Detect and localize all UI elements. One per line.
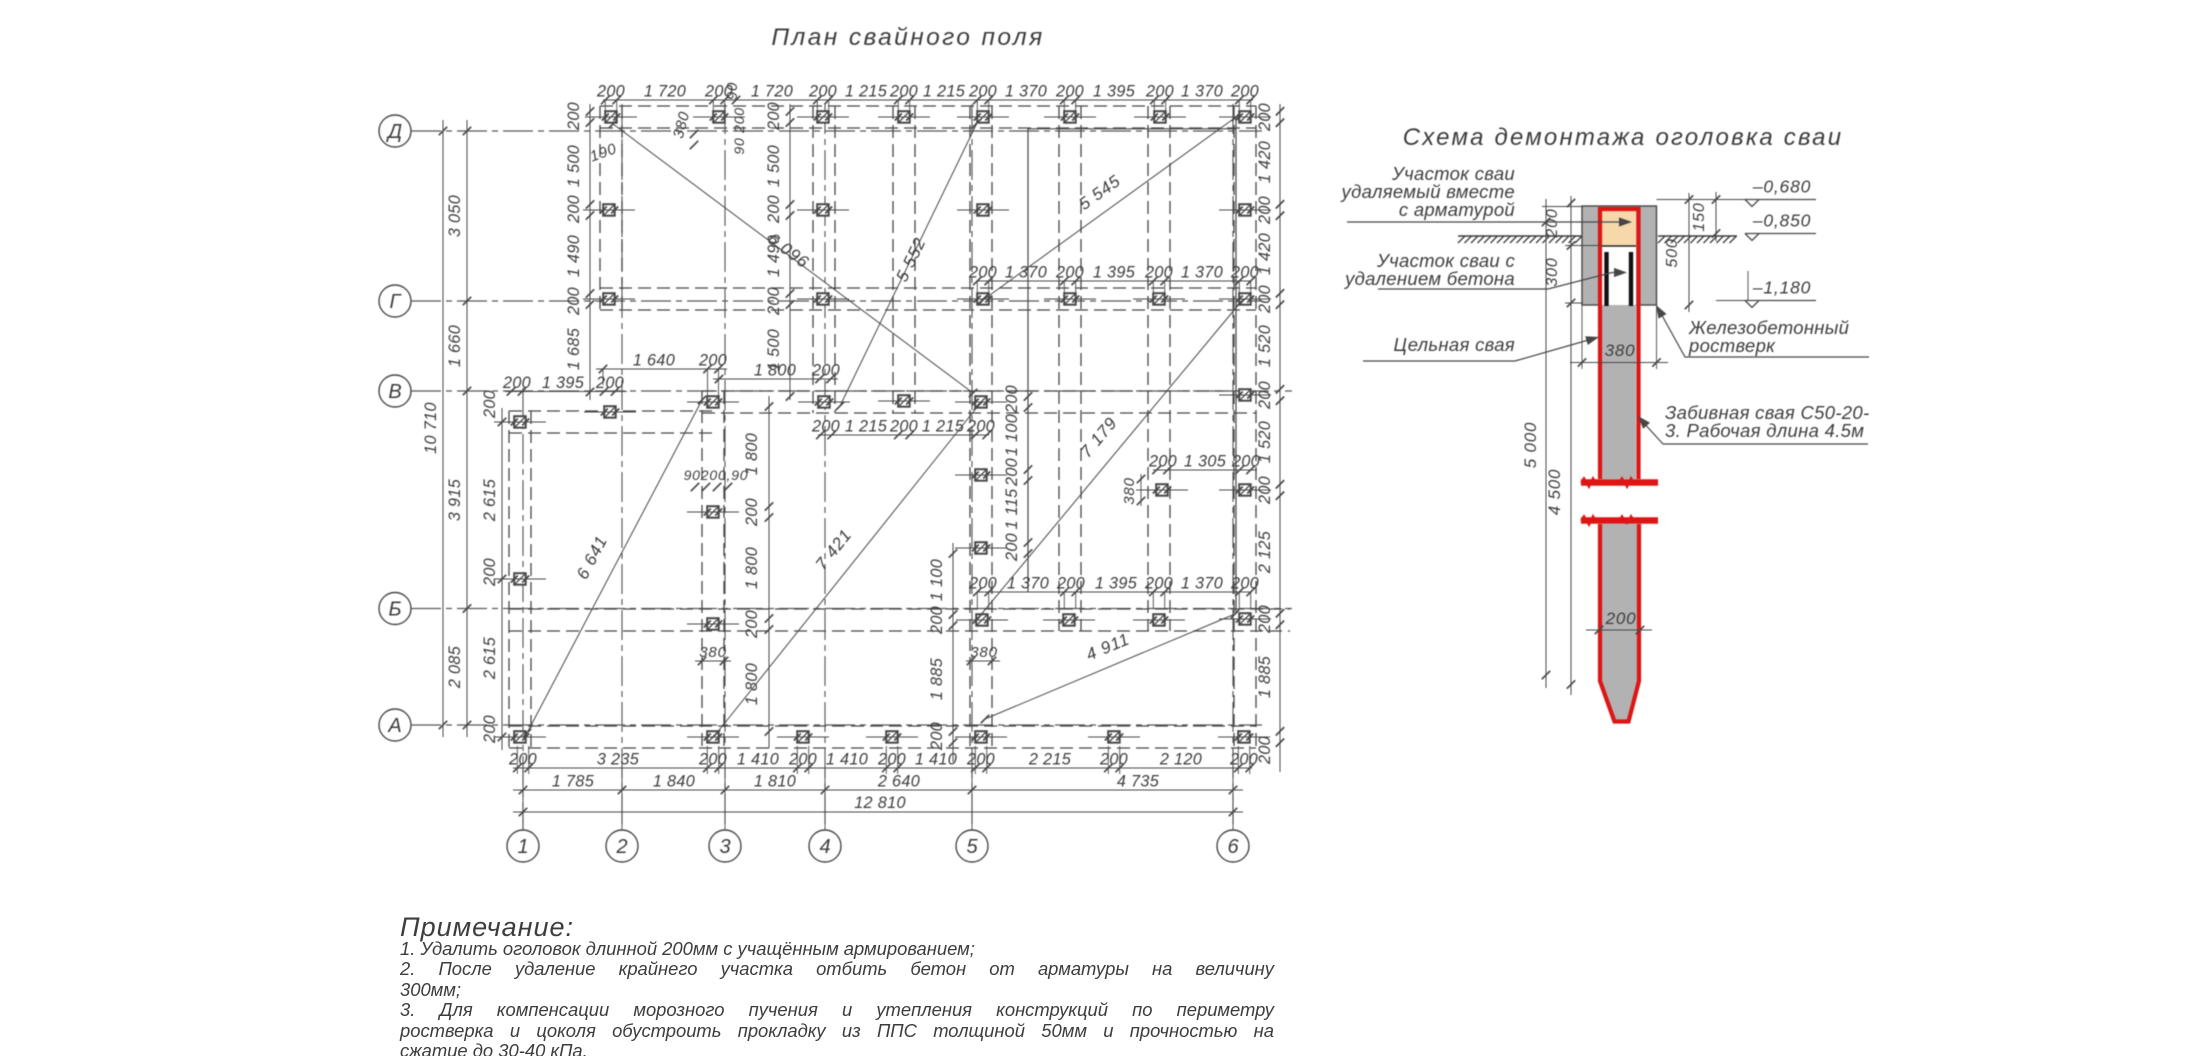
svg-text:150: 150 [1691, 202, 1708, 231]
svg-text:1 720: 1 720 [751, 83, 793, 101]
svg-text:200: 200 [889, 83, 918, 101]
svg-text:200: 200 [565, 195, 583, 224]
svg-text:4: 4 [819, 836, 830, 858]
svg-text:1 395: 1 395 [1095, 575, 1138, 593]
svg-text:1 520: 1 520 [1256, 325, 1274, 367]
svg-text:5 000: 5 000 [1521, 422, 1540, 469]
svg-text:90200,90: 90200,90 [684, 467, 749, 483]
svg-text:200: 200 [1256, 103, 1274, 132]
svg-text:200: 200 [1144, 264, 1173, 282]
svg-text:200: 200 [765, 287, 783, 316]
svg-text:1 800: 1 800 [743, 547, 761, 589]
svg-text:2: 2 [615, 836, 627, 858]
svg-text:200: 200 [595, 374, 624, 392]
svg-text:3: 3 [719, 836, 730, 858]
svg-text:200: 200 [1055, 264, 1084, 282]
svg-text:200: 200 [788, 751, 817, 769]
svg-text:1 410: 1 410 [737, 751, 779, 769]
svg-text:1 800: 1 800 [743, 663, 761, 705]
svg-text:1 215: 1 215 [922, 418, 965, 436]
svg-text:1 785: 1 785 [552, 773, 595, 791]
svg-text:6: 6 [1227, 836, 1239, 858]
svg-text:200: 200 [502, 374, 531, 392]
svg-text:1 420: 1 420 [1256, 141, 1274, 183]
svg-text:1 720: 1 720 [644, 83, 686, 101]
svg-text:1 500: 1 500 [765, 329, 783, 371]
svg-text:1 370: 1 370 [1007, 575, 1049, 593]
svg-text:–0,850: –0,850 [1752, 211, 1811, 231]
svg-text:200: 200 [1256, 285, 1274, 314]
svg-text:3 235: 3 235 [597, 751, 640, 769]
svg-text:План свайного поля: План свайного поля [771, 24, 1044, 51]
svg-text:200: 200 [1055, 83, 1084, 101]
svg-text:3 050: 3 050 [446, 195, 464, 237]
svg-text:1 305: 1 305 [1184, 453, 1227, 471]
svg-text:5: 5 [966, 836, 978, 858]
svg-text:1 395: 1 395 [542, 374, 585, 392]
svg-text:1 370: 1 370 [1181, 83, 1223, 101]
svg-text:1 215: 1 215 [923, 83, 966, 101]
svg-text:200: 200 [1003, 458, 1021, 487]
svg-text:380: 380 [1121, 477, 1138, 504]
svg-text:2 615: 2 615 [481, 636, 499, 680]
svg-text:–0,680: –0,680 [1752, 177, 1811, 197]
svg-text:Б: Б [388, 599, 401, 621]
svg-text:200: 200 [811, 362, 840, 380]
svg-text:1 100: 1 100 [928, 559, 946, 601]
svg-text:1 410: 1 410 [915, 751, 957, 769]
svg-text:4 500: 4 500 [1545, 469, 1564, 516]
svg-text:200: 200 [1256, 736, 1274, 765]
svg-text:Д: Д [386, 121, 402, 143]
svg-text:200: 200 [1003, 385, 1021, 414]
svg-text:В: В [388, 381, 401, 403]
svg-text:1 370: 1 370 [1005, 83, 1047, 101]
svg-text:Цельная свая: Цельная свая [1394, 334, 1515, 355]
svg-text:200: 200 [481, 390, 499, 419]
svg-text:1 885: 1 885 [928, 657, 946, 700]
svg-text:200: 200 [968, 575, 997, 593]
svg-text:1 420: 1 420 [1256, 233, 1274, 275]
svg-text:1 660: 1 660 [446, 325, 464, 367]
svg-text:200: 200 [1144, 575, 1173, 593]
svg-text:200: 200 [1230, 575, 1259, 593]
svg-text:2 120: 2 120 [1159, 751, 1202, 769]
svg-text:2 085: 2 085 [446, 645, 464, 689]
svg-text:200: 200 [928, 606, 946, 635]
svg-text:3 915: 3 915 [446, 478, 464, 521]
svg-text:1: 1 [517, 836, 528, 858]
svg-text:200: 200 [1256, 196, 1274, 225]
svg-text:200: 200 [1145, 83, 1174, 101]
svg-text:1 215: 1 215 [845, 418, 888, 436]
svg-text:200: 200 [596, 83, 625, 101]
svg-text:1 500: 1 500 [765, 145, 783, 187]
svg-text:4 735: 4 735 [1117, 773, 1160, 791]
svg-text:2 640: 2 640 [877, 773, 920, 791]
svg-text:200: 200 [928, 722, 946, 751]
svg-text:2 615: 2 615 [481, 478, 499, 522]
svg-text:2 215: 2 215 [1028, 751, 1072, 769]
svg-text:200: 200 [765, 195, 783, 224]
svg-text:1 500: 1 500 [565, 145, 583, 187]
svg-text:1 395: 1 395 [1093, 264, 1136, 282]
svg-text:200: 200 [889, 418, 918, 436]
svg-text:90: 90 [731, 137, 747, 154]
svg-text:200: 200 [966, 418, 995, 436]
svg-text:1 840: 1 840 [653, 773, 695, 791]
svg-text:200: 200 [811, 418, 840, 436]
svg-text:1 115: 1 115 [1003, 488, 1021, 530]
svg-text:200: 200 [743, 498, 761, 527]
svg-text:1 490: 1 490 [565, 235, 583, 277]
svg-text:с арматурой: с арматурой [1399, 199, 1515, 220]
svg-text:1 370: 1 370 [1005, 264, 1047, 282]
svg-text:200: 200 [966, 751, 995, 769]
svg-text:ростверк: ростверк [1688, 335, 1776, 356]
svg-text:200: 200 [565, 102, 583, 131]
svg-text:1 370: 1 370 [1181, 264, 1223, 282]
svg-text:200: 200 [1099, 751, 1128, 769]
svg-text:200: 200 [743, 610, 761, 639]
svg-text:1 370: 1 370 [1181, 575, 1223, 593]
svg-text:1 640: 1 640 [633, 352, 675, 370]
svg-text:200: 200 [698, 751, 727, 769]
svg-text:200: 200 [808, 83, 837, 101]
svg-text:200: 200 [731, 107, 747, 134]
svg-text:200: 200 [1230, 264, 1259, 282]
svg-text:удалением бетона: удалением бетона [1343, 268, 1515, 289]
svg-text:1 395: 1 395 [1093, 83, 1136, 101]
svg-text:200: 200 [1256, 381, 1274, 410]
svg-text:200: 200 [508, 751, 537, 769]
svg-text:1 810: 1 810 [754, 773, 796, 791]
svg-text:200: 200 [1544, 208, 1561, 238]
svg-text:–1,180: –1,180 [1752, 278, 1811, 298]
svg-text:200: 200 [877, 751, 906, 769]
svg-text:1 100: 1 100 [1003, 414, 1021, 456]
svg-text:А: А [387, 715, 401, 737]
svg-text:1 885: 1 885 [1256, 655, 1274, 698]
svg-text:200: 200 [1256, 605, 1274, 634]
svg-text:380: 380 [1605, 341, 1636, 360]
svg-text:200: 200 [1003, 533, 1021, 562]
svg-text:200: 200 [968, 264, 997, 282]
svg-text:1 520: 1 520 [1256, 421, 1274, 463]
svg-text:300: 300 [1544, 257, 1561, 286]
svg-text:3. Рабочая длина 4.5м: 3. Рабочая длина 4.5м [1665, 420, 1864, 441]
svg-text:500: 500 [1664, 238, 1681, 267]
svg-text:200: 200 [1230, 83, 1259, 101]
svg-text:1 215: 1 215 [845, 83, 888, 101]
svg-text:200: 200 [1148, 453, 1177, 471]
svg-text:200: 200 [968, 83, 997, 101]
svg-text:200: 200 [481, 558, 499, 587]
svg-text:200: 200 [1605, 609, 1637, 628]
svg-text:200: 200 [1056, 575, 1085, 593]
svg-text:200: 200 [481, 715, 499, 744]
svg-text:1 800: 1 800 [743, 433, 761, 475]
svg-text:2 125: 2 125 [1256, 530, 1274, 574]
svg-text:12 810: 12 810 [854, 794, 906, 812]
svg-text:200: 200 [765, 102, 783, 131]
svg-text:200: 200 [1256, 476, 1274, 505]
svg-text:90: 90 [724, 82, 741, 100]
svg-text:1 685: 1 685 [565, 327, 583, 370]
svg-text:200: 200 [1229, 751, 1258, 769]
svg-text:200: 200 [698, 352, 727, 370]
svg-text:10 710: 10 710 [422, 402, 440, 454]
svg-text:1 410: 1 410 [826, 751, 868, 769]
svg-text:200: 200 [565, 287, 583, 316]
svg-text:Схема демонтажа оголовка сваи: Схема демонтажа оголовка сваи [1403, 124, 1844, 151]
